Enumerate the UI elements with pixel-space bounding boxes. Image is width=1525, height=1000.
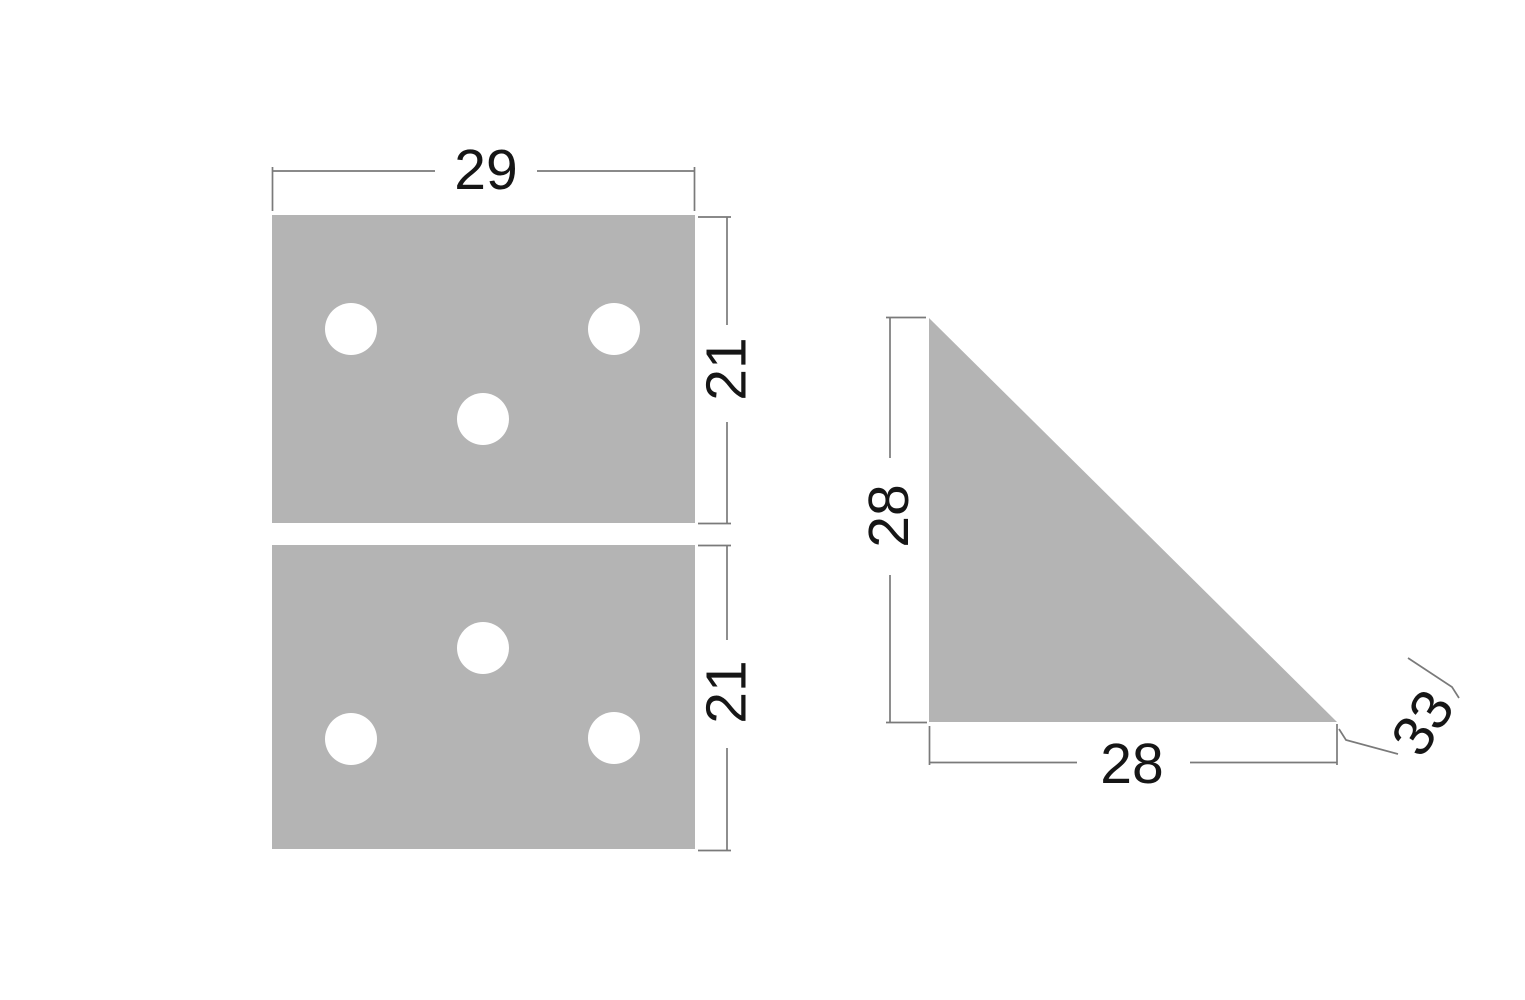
dim-triangle-base-label: 28	[1100, 732, 1163, 796]
plate-bottom-hole-right	[588, 712, 640, 764]
plate-bottom-hole-center	[457, 622, 509, 674]
dim-plate-top-height-label: 21	[695, 337, 759, 400]
dim-triangle-height-label: 28	[857, 484, 921, 547]
plate-bottom-hole-left	[325, 713, 377, 765]
plate-top-hole-center	[457, 393, 509, 445]
plate-bottom-group	[272, 545, 695, 849]
plate-top-group	[272, 215, 695, 523]
plate-bottom	[272, 545, 695, 849]
plate-top	[272, 215, 695, 523]
dim-plate-width-label: 29	[454, 138, 517, 202]
drawing-canvas: 29 21 21 28 28 33	[0, 0, 1525, 1000]
dim-plate-bottom-height-label: 21	[695, 660, 759, 723]
plate-top-hole-right	[588, 303, 640, 355]
drawing-background	[0, 0, 1525, 1000]
plate-top-hole-left	[325, 303, 377, 355]
technical-drawing: 29 21 21 28 28 33	[0, 0, 1525, 1000]
